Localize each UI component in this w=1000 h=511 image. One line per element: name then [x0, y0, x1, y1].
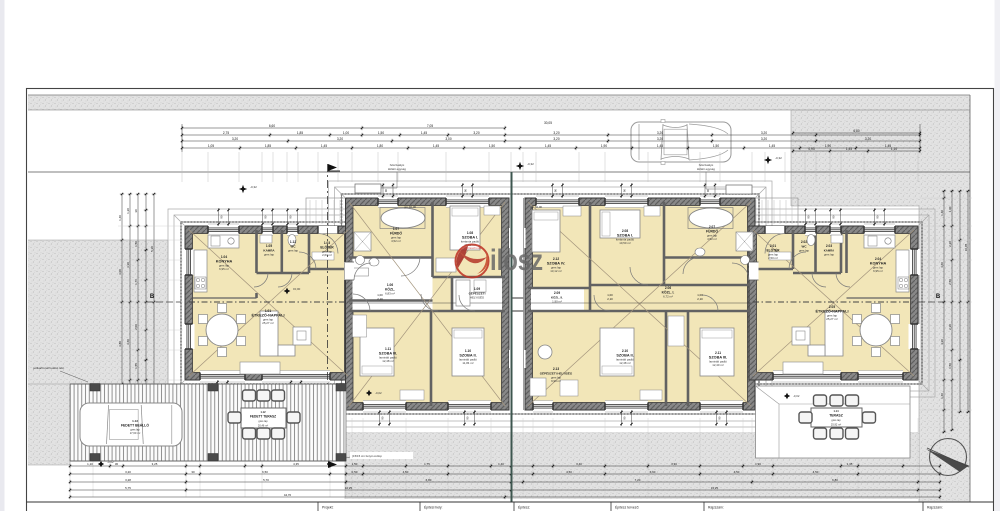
svg-text:1,90: 1,90	[755, 462, 761, 466]
svg-text:13,12 m²: 13,12 m²	[550, 269, 561, 273]
svg-text:Rajzszám:: Rajzszám:	[708, 506, 724, 510]
svg-text:5,30: 5,30	[150, 246, 154, 252]
svg-text:12,40 m²: 12,40 m²	[712, 363, 723, 367]
svg-text:3,20: 3,20	[761, 131, 767, 135]
svg-text:1,50: 1,50	[134, 241, 138, 247]
svg-text:1.12: 1.12	[260, 410, 266, 414]
svg-text:3,80: 3,80	[118, 341, 122, 347]
svg-text:4,50: 4,50	[566, 470, 572, 474]
svg-text:-0,32: -0,32	[527, 162, 534, 166]
svg-text:1.14: 1.14	[833, 409, 839, 413]
svg-text:ilosz: ilosz	[490, 244, 543, 277]
svg-text:1,40: 1,40	[118, 215, 122, 221]
svg-text:Építész:: Építész:	[518, 505, 530, 510]
svg-text:17,60 m²: 17,60 m²	[130, 431, 141, 435]
svg-text:B: B	[936, 294, 941, 300]
svg-text:FEDETT TERASZ: FEDETT TERASZ	[250, 415, 276, 419]
svg-text:-0,32: -0,32	[775, 156, 782, 160]
svg-text:1,45: 1,45	[421, 131, 427, 135]
svg-text:polikarbonát fedésű tető: polikarbonát fedésű tető	[33, 366, 64, 370]
svg-text:3,20: 3,20	[657, 137, 663, 141]
svg-text:4,50: 4,50	[734, 470, 740, 474]
svg-text:1.13: 1.13	[132, 419, 138, 423]
svg-text:1,10: 1,10	[87, 462, 93, 466]
svg-text:4,50: 4,50	[813, 470, 819, 474]
svg-text:4,20: 4,20	[940, 339, 944, 345]
svg-text:30,05: 30,05	[544, 121, 552, 125]
svg-text:3,20: 3,20	[553, 137, 559, 141]
svg-text:FEDETT BEÁLLÓ: FEDETT BEÁLLÓ	[121, 423, 149, 428]
svg-text:7,05: 7,05	[427, 124, 433, 128]
svg-text:1,35: 1,35	[847, 462, 853, 466]
svg-text:1,75: 1,75	[424, 462, 430, 466]
svg-text:6,80: 6,80	[426, 478, 432, 482]
svg-text:gres lap: gres lap	[831, 418, 841, 422]
svg-text:1,50: 1,50	[948, 363, 952, 369]
svg-text:4,50: 4,50	[403, 470, 409, 474]
svg-text:25,27 m²: 25,27 m²	[262, 321, 273, 325]
svg-text:30: 30	[191, 470, 195, 474]
svg-text:Rajzszám:: Rajzszám:	[927, 506, 943, 510]
svg-text:HELYISÉG: HELYISÉG	[470, 294, 485, 299]
svg-text:1,50: 1,50	[352, 462, 358, 466]
svg-text:1,50: 1,50	[378, 131, 384, 135]
svg-text:1,80: 1,80	[377, 144, 383, 148]
svg-text:0,50: 0,50	[352, 470, 358, 474]
svg-text:7,20: 7,20	[635, 478, 641, 482]
svg-text:30: 30	[115, 462, 119, 466]
svg-text:2,50 m²: 2,50 m²	[768, 256, 778, 260]
svg-text:6,60: 6,60	[269, 124, 275, 128]
svg-text:4,35: 4,35	[293, 462, 299, 466]
svg-text:6,80: 6,80	[832, 478, 838, 482]
svg-text:gm ±0,00: gm ±0,00	[404, 205, 416, 209]
svg-text:0,93: 0,93	[808, 147, 814, 151]
svg-text:2,00: 2,00	[134, 324, 138, 330]
svg-text:±0,00: ±0,00	[293, 287, 301, 291]
svg-text:2,20: 2,20	[948, 241, 952, 247]
svg-text:2,50: 2,50	[948, 279, 952, 285]
svg-text:1,45: 1,45	[545, 144, 551, 148]
svg-text:1,20: 1,20	[126, 208, 130, 214]
svg-text:Építész tervező:: Építész tervező:	[615, 505, 639, 510]
svg-text:20,46 m²: 20,46 m²	[258, 424, 268, 428]
svg-text:6,50: 6,50	[262, 470, 268, 474]
svg-text:1,70: 1,70	[134, 279, 138, 285]
svg-text:1,50: 1,50	[713, 144, 719, 148]
svg-text:1,45: 1,45	[657, 144, 663, 148]
svg-text:6,80: 6,80	[853, 129, 859, 133]
svg-text:1,90: 1,90	[601, 144, 607, 148]
svg-text:1,85: 1,85	[297, 131, 303, 135]
svg-text:12,48 m²: 12,48 m²	[382, 359, 393, 363]
svg-text:1,50: 1,50	[489, 144, 495, 148]
svg-text:kültéri egység: kültéri egység	[697, 167, 715, 171]
svg-text:1,90: 1,90	[825, 144, 831, 148]
svg-text:6,95 m²: 6,95 m²	[873, 269, 883, 273]
svg-text:30: 30	[134, 209, 138, 213]
svg-text:3,20: 3,20	[337, 137, 343, 141]
svg-text:B: B	[150, 294, 155, 300]
svg-text:10,25: 10,25	[345, 486, 353, 490]
svg-text:1,40: 1,40	[940, 393, 944, 399]
svg-text:11,84 m²: 11,84 m²	[462, 361, 473, 365]
svg-text:3,20: 3,20	[232, 137, 238, 141]
svg-text:1,40: 1,40	[940, 210, 944, 216]
svg-text:4,52 m²: 4,52 m²	[391, 239, 401, 243]
svg-text:10,50 m²: 10,50 m²	[619, 241, 630, 245]
svg-text:-0,02: -0,02	[793, 394, 800, 398]
svg-text:1,45: 1,45	[321, 144, 327, 148]
svg-text:1,45: 1,45	[769, 144, 775, 148]
svg-text:4,60: 4,60	[940, 262, 944, 268]
svg-text:kültéri egység: kültéri egység	[388, 167, 406, 171]
svg-text:TERASZ: TERASZ	[829, 414, 843, 418]
svg-text:2,10: 2,10	[697, 297, 703, 301]
svg-text:3,20: 3,20	[657, 131, 663, 135]
svg-text:1,40: 1,40	[498, 462, 504, 466]
svg-text:3,60: 3,60	[126, 339, 130, 345]
svg-text:3,20: 3,20	[473, 131, 479, 135]
svg-text:3,30: 3,30	[671, 462, 677, 466]
svg-text:Építési hely:: Építési hely:	[424, 505, 443, 510]
svg-text:10,05: 10,05	[964, 243, 968, 251]
svg-text:3,20: 3,20	[553, 131, 559, 135]
svg-text:-0,32: -0,32	[250, 185, 257, 189]
svg-text:(15/15 cm fenyő oszlop: (15/15 cm fenyő oszlop	[352, 454, 382, 458]
svg-text:gm ±0,00: gm ±0,00	[530, 205, 542, 209]
svg-text:3,28: 3,28	[125, 478, 131, 482]
svg-text:15,25: 15,25	[711, 486, 719, 490]
svg-text:3,20: 3,20	[761, 137, 767, 141]
svg-text:3,20: 3,20	[865, 137, 871, 141]
svg-text:1,45: 1,45	[433, 144, 439, 148]
svg-text:3,00: 3,00	[118, 269, 122, 275]
svg-text:3,20: 3,20	[125, 470, 131, 474]
svg-text:1,85: 1,85	[265, 144, 271, 148]
svg-text:6,60: 6,60	[650, 470, 656, 474]
svg-text:9,90 m²: 9,90 m²	[551, 379, 561, 383]
svg-text:1,05: 1,05	[208, 144, 214, 148]
svg-text:2,10: 2,10	[607, 297, 613, 301]
svg-text:1,10: 1,10	[891, 147, 897, 151]
svg-text:6,95 m²: 6,95 m²	[219, 267, 229, 271]
svg-text:1,55: 1,55	[134, 363, 138, 369]
svg-text:gres lap: gres lap	[824, 252, 835, 256]
svg-text:44,70: 44,70	[284, 493, 292, 497]
svg-text:5,75: 5,75	[125, 486, 131, 490]
svg-text:3,00: 3,00	[445, 137, 451, 141]
svg-text:2,30: 2,30	[948, 324, 952, 330]
svg-text:-0,02: -0,02	[375, 391, 382, 395]
svg-text:1,90: 1,90	[948, 206, 952, 212]
svg-text:gres lap: gres lap	[799, 248, 810, 252]
svg-text:1,90 m²: 1,90 m²	[552, 299, 562, 303]
svg-text:2,63 m²: 2,63 m²	[322, 253, 332, 257]
svg-text:gres lap: gres lap	[258, 419, 268, 423]
svg-text:3,30: 3,30	[126, 262, 130, 268]
svg-text:gres lap: gres lap	[264, 252, 275, 256]
svg-text:25,27 m²: 25,27 m²	[826, 317, 837, 321]
svg-text:Projekt:: Projekt:	[322, 506, 334, 510]
svg-text:6,83 m²: 6,83 m²	[385, 291, 395, 295]
svg-text:2,10: 2,10	[377, 297, 383, 301]
svg-text:5,70: 5,70	[263, 478, 269, 482]
svg-text:1,45: 1,45	[846, 147, 852, 151]
svg-text:12,48 m²: 12,48 m²	[619, 361, 630, 365]
svg-text:3,25: 3,25	[152, 462, 158, 466]
svg-text:25,92 m²: 25,92 m²	[831, 423, 841, 427]
svg-text:3,40: 3,40	[576, 462, 582, 466]
svg-text:2,75: 2,75	[223, 131, 229, 135]
svg-text:1,00: 1,00	[343, 131, 349, 135]
svg-text:gres lap: gres lap	[130, 428, 140, 432]
svg-text:gres lap: gres lap	[288, 248, 299, 252]
svg-text:4,52 m²: 4,52 m²	[707, 237, 717, 241]
svg-text:6,72 m²: 6,72 m²	[663, 294, 673, 298]
